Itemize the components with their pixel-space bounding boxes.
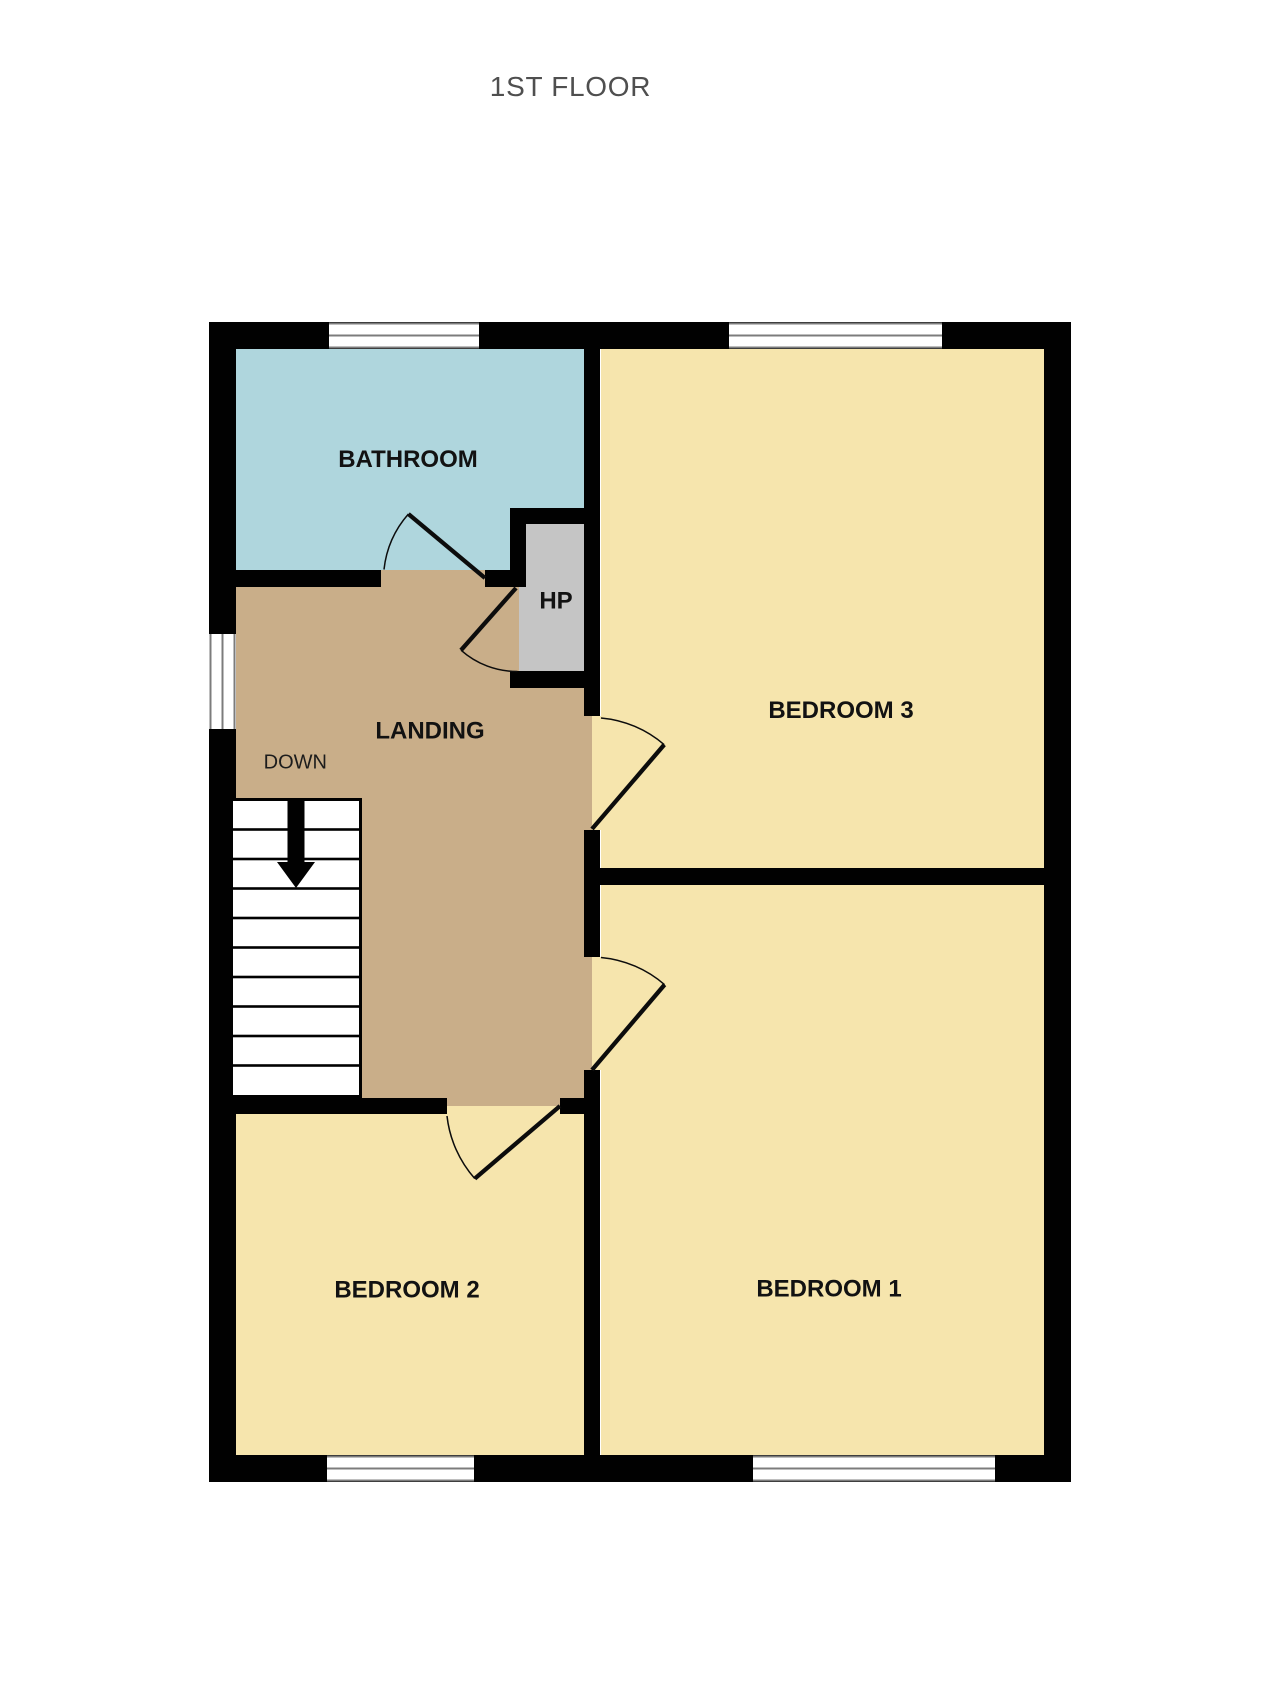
svg-text:DOWN: DOWN [264, 752, 327, 774]
svg-text:BEDROOM 1: BEDROOM 1 [756, 1276, 901, 1303]
svg-text:HP: HP [539, 588, 572, 615]
svg-text:LANDING: LANDING [375, 718, 484, 745]
svg-text:BEDROOM 2: BEDROOM 2 [334, 1277, 479, 1304]
svg-text:BEDROOM 3: BEDROOM 3 [768, 697, 913, 724]
svg-text:BATHROOM: BATHROOM [338, 446, 478, 473]
svg-text:1ST FLOOR: 1ST FLOOR [490, 71, 651, 102]
